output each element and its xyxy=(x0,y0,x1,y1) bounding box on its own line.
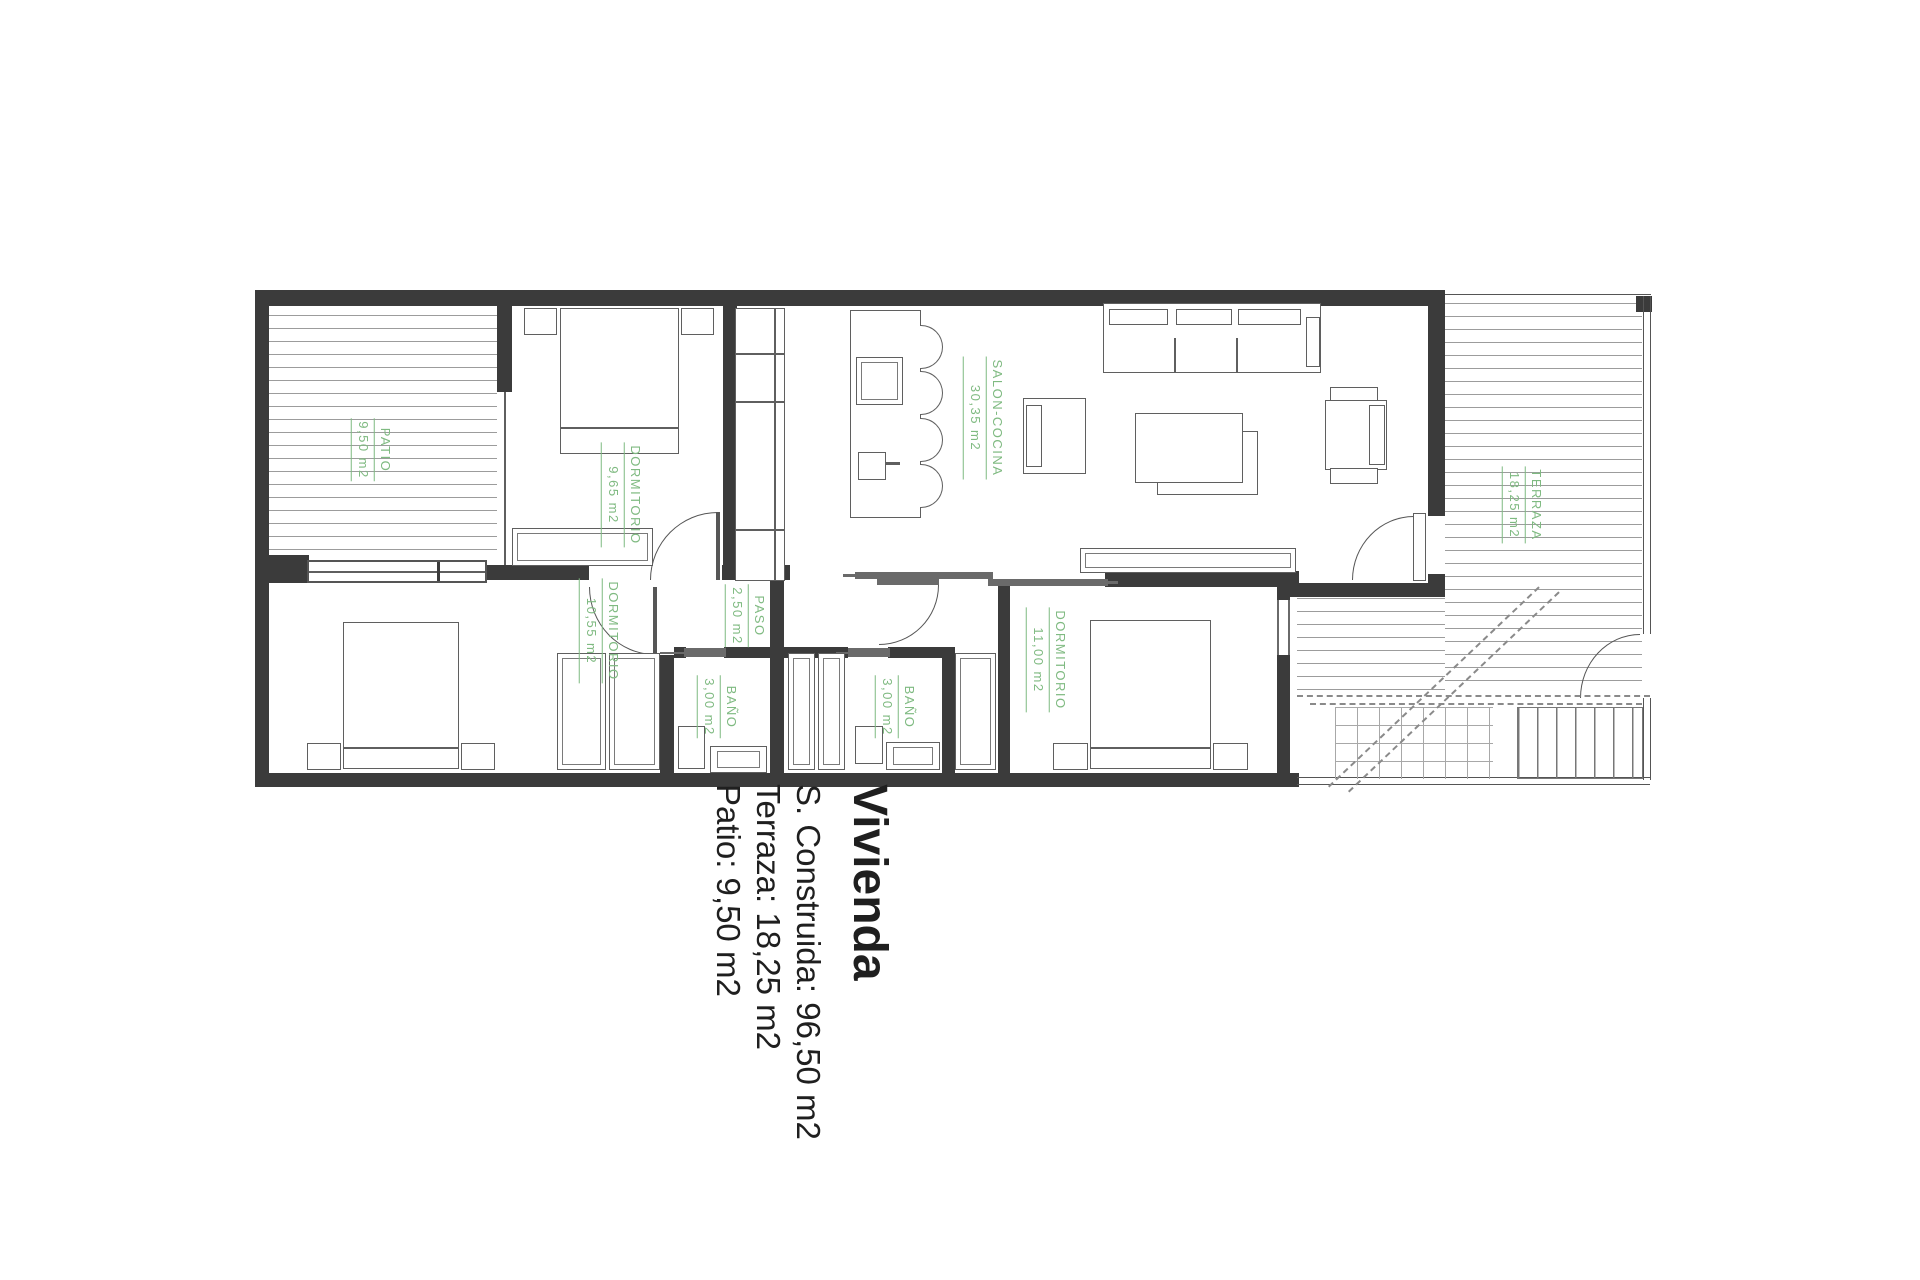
room-area: 18,25 m2 xyxy=(1502,466,1521,543)
wall-left xyxy=(255,290,269,787)
door-arc-vestibule xyxy=(879,585,939,645)
pocket-door-bath1-track xyxy=(660,652,684,654)
wall-corner-block xyxy=(255,555,309,583)
room-label-dormitorio1: DORMITORIO 9,65 m2 xyxy=(601,442,643,547)
tv-cabinet-inner xyxy=(1085,553,1291,568)
terrace-area-line: Terraza: 18,25 m2 xyxy=(748,784,788,1224)
cabinet-divider xyxy=(736,401,784,403)
sofa-armrest xyxy=(1306,317,1320,367)
wall-bath2-north-b xyxy=(888,647,942,658)
wall-bedroom2-east xyxy=(660,655,674,775)
room-label-bano1: BAÑO 3,00 m2 xyxy=(697,675,739,738)
patio-window xyxy=(307,560,487,583)
wardrobe-inner xyxy=(960,658,991,765)
door-leaf-bedroom1 xyxy=(716,512,720,580)
nightstand xyxy=(307,743,341,770)
deck-dashed-line xyxy=(1297,695,1650,697)
wall-bedroom3-north xyxy=(1105,573,1290,587)
room-label-paso: PASO 2,50 m2 xyxy=(725,584,767,647)
room-label-patio: PATIO 9,50 m2 xyxy=(351,418,393,481)
bed-fold-line xyxy=(561,427,678,429)
room-name: PASO xyxy=(748,584,767,647)
patio-area-line: Patio: 9,50 m2 xyxy=(708,784,748,1224)
wall-bath1-north-b xyxy=(724,647,770,658)
armchair-right xyxy=(1325,400,1387,470)
cabinet-divider xyxy=(736,353,784,355)
wardrobe-inner xyxy=(793,658,810,765)
toilet xyxy=(886,742,940,770)
room-area: 9,65 m2 xyxy=(601,442,620,547)
room-name: BAÑO xyxy=(898,675,917,738)
room-area: 11,00 m2 xyxy=(1026,607,1045,712)
door-leaf-terraza xyxy=(1413,513,1426,581)
sliding-door-panel-b xyxy=(988,579,1108,586)
room-name: SALON-COCINA xyxy=(986,357,1005,480)
cabinet-divider xyxy=(736,529,784,531)
nightstand xyxy=(524,308,557,335)
pergola-grid xyxy=(1335,707,1493,779)
wall-bath1-east xyxy=(770,565,784,775)
bed xyxy=(1090,620,1211,769)
bar-stool xyxy=(920,418,943,462)
wall-divider-a xyxy=(487,565,589,580)
cooktop-inner xyxy=(861,362,898,400)
room-label-terraza: TERRAZA 18,25 m2 xyxy=(1502,466,1544,543)
room-name: DORMITORIO xyxy=(624,442,643,547)
cabinet-counter-line xyxy=(774,309,776,580)
toilet-inner xyxy=(893,747,933,765)
room-name: BAÑO xyxy=(720,675,739,738)
terraza-top-line xyxy=(1445,294,1651,297)
bed-fold-line xyxy=(344,747,458,749)
coffee-table-upper xyxy=(1135,413,1243,483)
room-label-dormitorio2: DORMITORIO 10,55 m2 xyxy=(579,578,621,683)
room-area: 3,00 m2 xyxy=(697,675,716,738)
sink xyxy=(858,452,886,480)
armchair-right-cushion xyxy=(1369,405,1385,465)
room-label-salon: SALON-COCINA 30,35 m2 xyxy=(963,357,1005,480)
toilet-inner xyxy=(717,751,760,768)
patio-edge-line xyxy=(504,392,506,565)
pocket-door-bath1 xyxy=(684,648,726,657)
door-arc-terraza xyxy=(1352,516,1414,580)
room-area: 30,35 m2 xyxy=(963,357,982,480)
door-leaf-vestibule xyxy=(877,578,939,585)
bed xyxy=(343,622,459,769)
sliding-door-tick-a xyxy=(843,574,855,577)
kitchen-cabinets xyxy=(735,308,785,581)
deck-right-boundary-upper xyxy=(1643,296,1651,634)
sliding-door-tick-b xyxy=(1106,581,1118,584)
sofa-back-cushion xyxy=(1109,309,1168,325)
bar-stool xyxy=(920,464,943,508)
room-area: 10,55 m2 xyxy=(579,578,598,683)
sliding-door-panel-a xyxy=(855,572,993,579)
cooktop xyxy=(856,357,903,405)
room-area: 2,50 m2 xyxy=(725,584,744,647)
room-name: DORMITORIO xyxy=(602,578,621,683)
room-label-dormitorio3: DORMITORIO 11,00 m2 xyxy=(1026,607,1068,712)
wall-bedroom3-right-b xyxy=(1277,655,1290,775)
toilet xyxy=(710,746,767,773)
deck-dashed-line xyxy=(1310,703,1642,705)
sofa-back-cushion xyxy=(1176,309,1232,325)
title-block: Vivienda S. Construida: 96,50 m2 Terraza… xyxy=(697,784,895,1224)
bedroom3-window xyxy=(1277,600,1290,655)
armchair-right-front xyxy=(1330,468,1378,484)
patio-window-post xyxy=(437,562,440,581)
wall-bedroom3-west xyxy=(998,585,1010,775)
wall-bedroom3-right-a xyxy=(1277,585,1290,600)
wardrobe-inner xyxy=(823,658,840,765)
wardrobe xyxy=(788,653,815,770)
kitchen-island xyxy=(850,310,921,518)
room-area: 9,50 m2 xyxy=(351,418,370,481)
wardrobe xyxy=(818,653,845,770)
nightstand xyxy=(461,743,495,770)
room-area: 3,00 m2 xyxy=(875,675,894,738)
bed-fold-line xyxy=(1091,747,1210,749)
armchair-left-cushion xyxy=(1026,405,1042,467)
wall-salon-bottom-right xyxy=(1290,583,1445,597)
sofa-back-cushion xyxy=(1238,309,1301,325)
room-name: PATIO xyxy=(374,418,393,481)
nightstand xyxy=(681,308,714,335)
wall-bath2-east xyxy=(942,647,955,775)
exterior-stairs xyxy=(1517,707,1643,779)
side-deck-decking xyxy=(1297,598,1445,693)
bar-stool xyxy=(920,325,943,369)
bar-stool xyxy=(920,371,943,415)
pocket-door-bath2 xyxy=(848,648,890,657)
sofa-seat-divider xyxy=(1174,338,1176,372)
wall-right-upper xyxy=(1428,290,1445,516)
bed xyxy=(560,308,679,454)
door-leaf-bedroom2 xyxy=(653,587,657,655)
wardrobe xyxy=(955,653,996,770)
floor-plan-page: PATIO 9,50 m2 DORMITORIO 9,65 m2 SALON-C… xyxy=(0,0,1920,1280)
room-name: DORMITORIO xyxy=(1049,607,1068,712)
door-arc-bedroom1 xyxy=(650,512,718,580)
nightstand xyxy=(1053,743,1088,770)
sink-faucet xyxy=(886,462,900,465)
plan-title: Vivienda xyxy=(842,784,895,1224)
room-name: TERRAZA xyxy=(1525,466,1544,543)
deck-right-boundary-lower xyxy=(1643,698,1651,780)
room-label-bano2: BAÑO 3,00 m2 xyxy=(875,675,917,738)
wall-patio-stub xyxy=(497,302,512,392)
patio-window-midline xyxy=(309,571,485,573)
sofa xyxy=(1103,303,1321,373)
tv-cabinet xyxy=(1080,548,1296,573)
armchair-left xyxy=(1023,398,1086,474)
built-area-line: S. Construida: 96,50 m2 xyxy=(788,784,828,1224)
sofa-seat-divider xyxy=(1236,338,1238,372)
nightstand xyxy=(1213,743,1248,770)
